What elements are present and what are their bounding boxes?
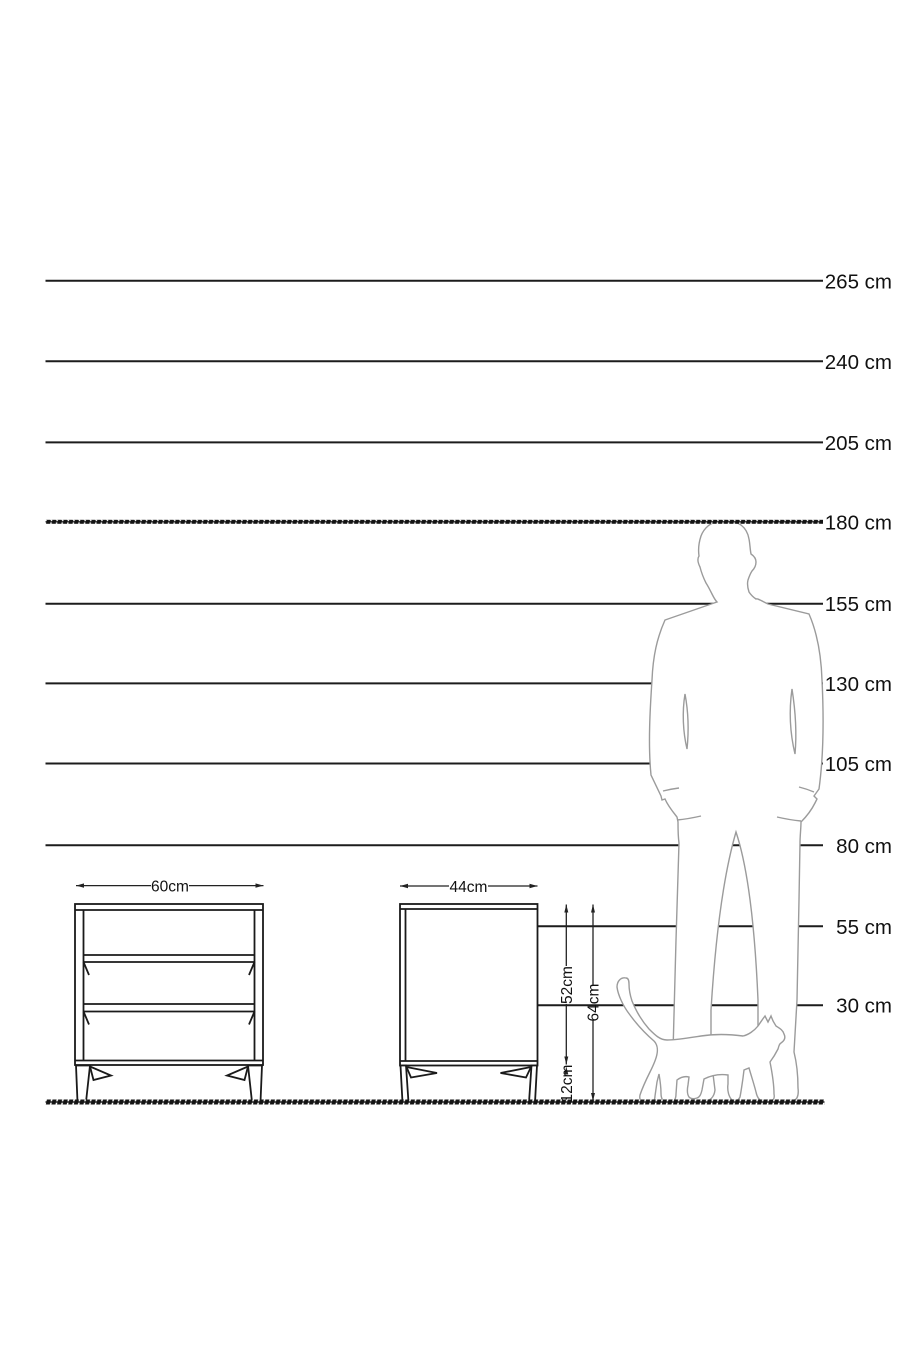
svg-text:44cm: 44cm (450, 879, 488, 896)
svg-text:240 cm: 240 cm (825, 351, 892, 374)
svg-text:52cm: 52cm (559, 966, 576, 1004)
svg-text:180 cm: 180 cm (825, 511, 892, 534)
svg-text:130 cm: 130 cm (825, 673, 892, 696)
svg-text:60cm: 60cm (151, 879, 189, 896)
svg-text:265 cm: 265 cm (825, 270, 892, 293)
svg-text:205 cm: 205 cm (825, 432, 892, 455)
svg-text:105 cm: 105 cm (825, 753, 892, 776)
svg-text:12cm: 12cm (559, 1065, 576, 1103)
svg-text:64cm: 64cm (586, 984, 603, 1022)
svg-text:155 cm: 155 cm (825, 593, 892, 616)
svg-text:80 cm: 80 cm (836, 835, 892, 858)
svg-text:30 cm: 30 cm (836, 995, 892, 1018)
svg-text:55 cm: 55 cm (836, 916, 892, 939)
